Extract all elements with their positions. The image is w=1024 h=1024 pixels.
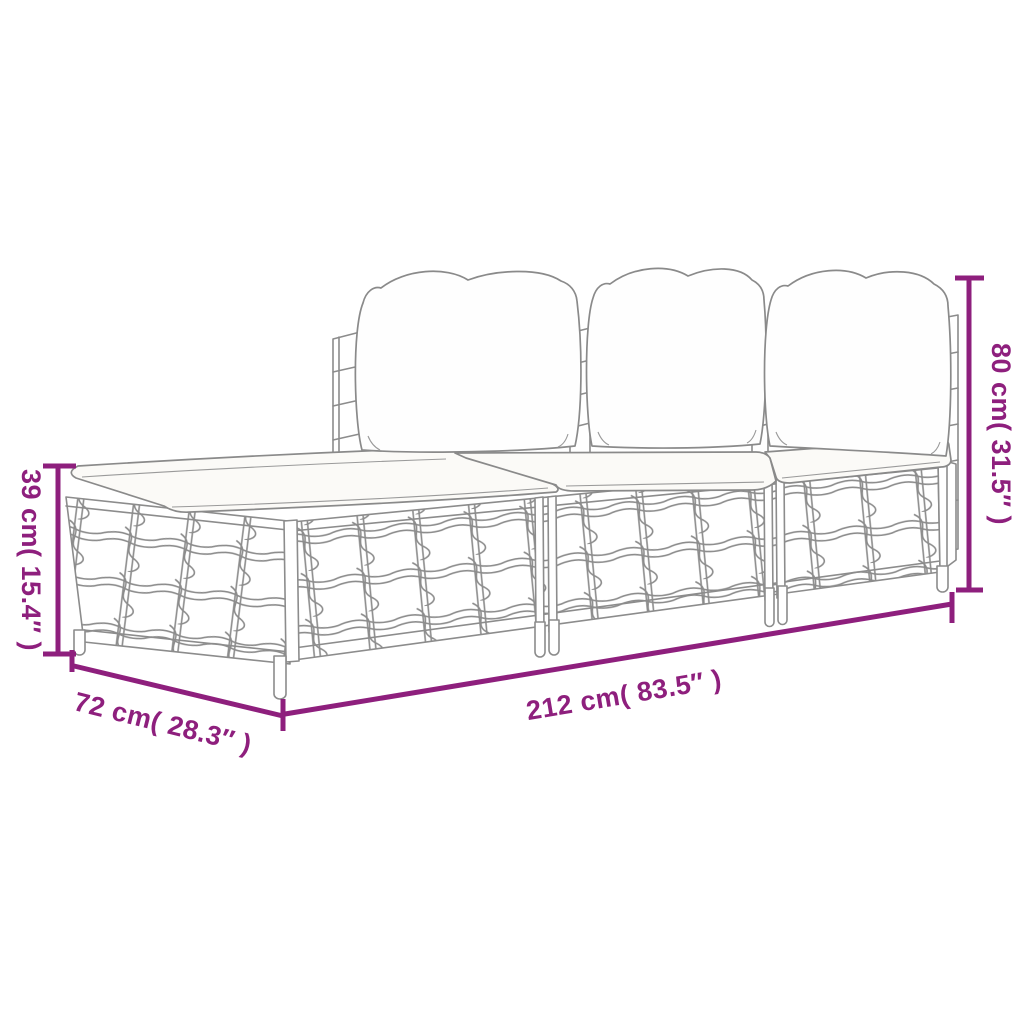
back-pillow-middle [587,268,767,448]
seat-height-dimension-label: 39 cm( 15.4″ ) [16,469,46,651]
leg [274,656,286,699]
module-post [535,497,544,634]
back-pillows [355,268,950,456]
dimension-diagram-page: 80 cm( 31.5″ ) 39 cm( 15.4″ ) 72 cm( 28.… [0,0,1024,1024]
module-post [548,496,557,632]
width-dimension-label: 212 cm( 83.5″ ) [524,664,724,726]
module-post [776,473,785,598]
leg [549,620,559,655]
dimension-height: 80 cm( 31.5″ ) [955,278,1016,590]
height-dimension-label: 80 cm( 31.5″ ) [986,343,1016,525]
leg [535,622,545,657]
back-pillow-left [355,271,581,452]
leg [937,566,948,592]
sofa-illustration [66,268,958,699]
leg [778,586,787,625]
corner-post [284,520,299,662]
leg [74,630,85,655]
product-dimension-diagram: 80 cm( 31.5″ ) 39 cm( 15.4″ ) 72 cm( 28.… [0,0,1024,1024]
depth-dimension-label: 72 cm( 28.3″ ) [71,686,255,759]
leg [765,588,774,627]
module-post [764,475,773,600]
dimension-seat-height: 39 cm( 15.4″ ) [16,466,76,654]
dimension-depth: 72 cm( 28.3″ ) [71,650,283,760]
back-pillow-right [765,270,951,456]
